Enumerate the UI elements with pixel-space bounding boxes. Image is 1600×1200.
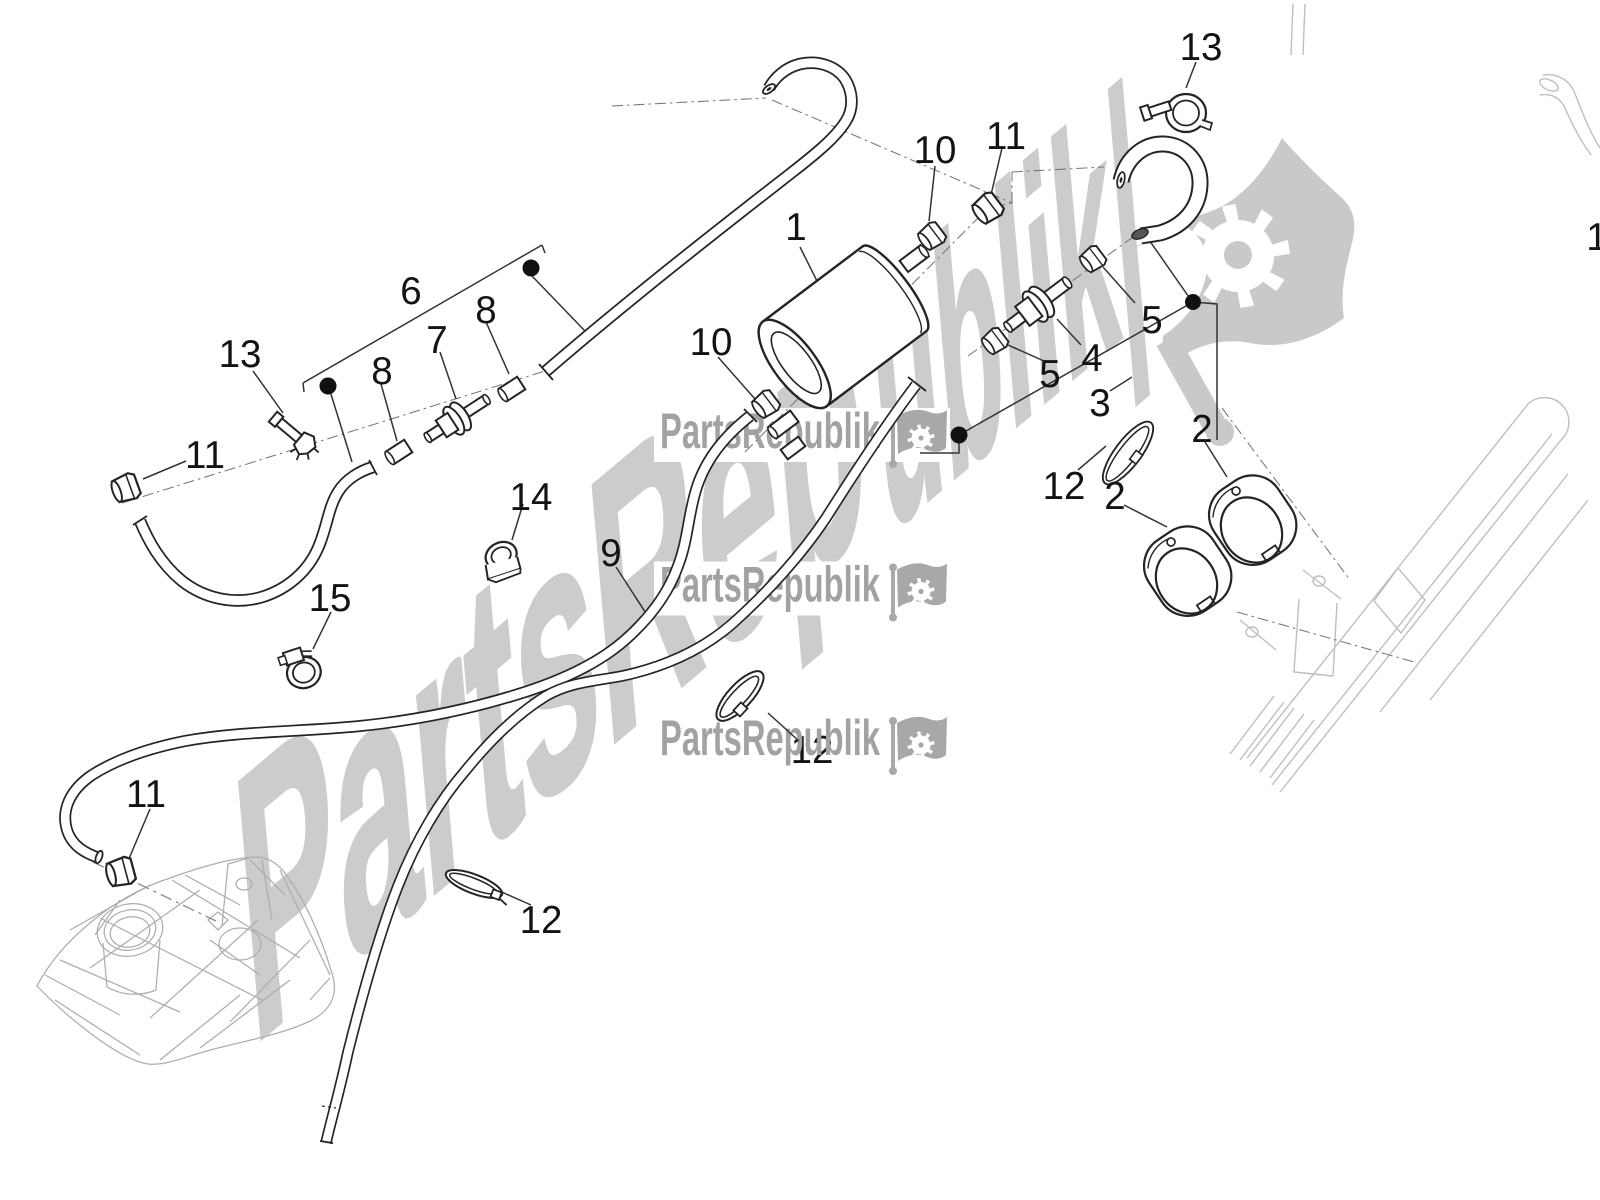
svg-text:6: 6 xyxy=(400,270,421,313)
svg-text:7: 7 xyxy=(426,319,447,362)
svg-text:PartsRepublik: PartsRepublik xyxy=(660,710,880,766)
svg-text:2: 2 xyxy=(1191,408,1212,451)
svg-text:12: 12 xyxy=(520,899,563,942)
svg-text:2: 2 xyxy=(1104,475,1125,518)
svg-text:15: 15 xyxy=(309,577,352,620)
svg-text:9: 9 xyxy=(600,532,621,575)
svg-text:14: 14 xyxy=(510,476,553,519)
svg-text:11: 11 xyxy=(986,115,1026,158)
svg-text:4: 4 xyxy=(1081,337,1102,380)
svg-text:11: 11 xyxy=(126,773,166,816)
svg-text:1: 1 xyxy=(1586,216,1600,259)
svg-text:8: 8 xyxy=(371,350,392,393)
svg-text:3: 3 xyxy=(1089,382,1110,425)
svg-text:10: 10 xyxy=(914,129,957,172)
svg-text:13: 13 xyxy=(1180,26,1223,69)
svg-text:8: 8 xyxy=(475,289,496,332)
svg-text:13: 13 xyxy=(219,333,262,376)
svg-text:12: 12 xyxy=(1043,465,1086,508)
svg-text:5: 5 xyxy=(1039,353,1060,396)
svg-text:10: 10 xyxy=(690,321,733,364)
svg-text:5: 5 xyxy=(1141,299,1162,342)
svg-text:11: 11 xyxy=(185,434,225,477)
svg-text:1: 1 xyxy=(785,206,806,249)
